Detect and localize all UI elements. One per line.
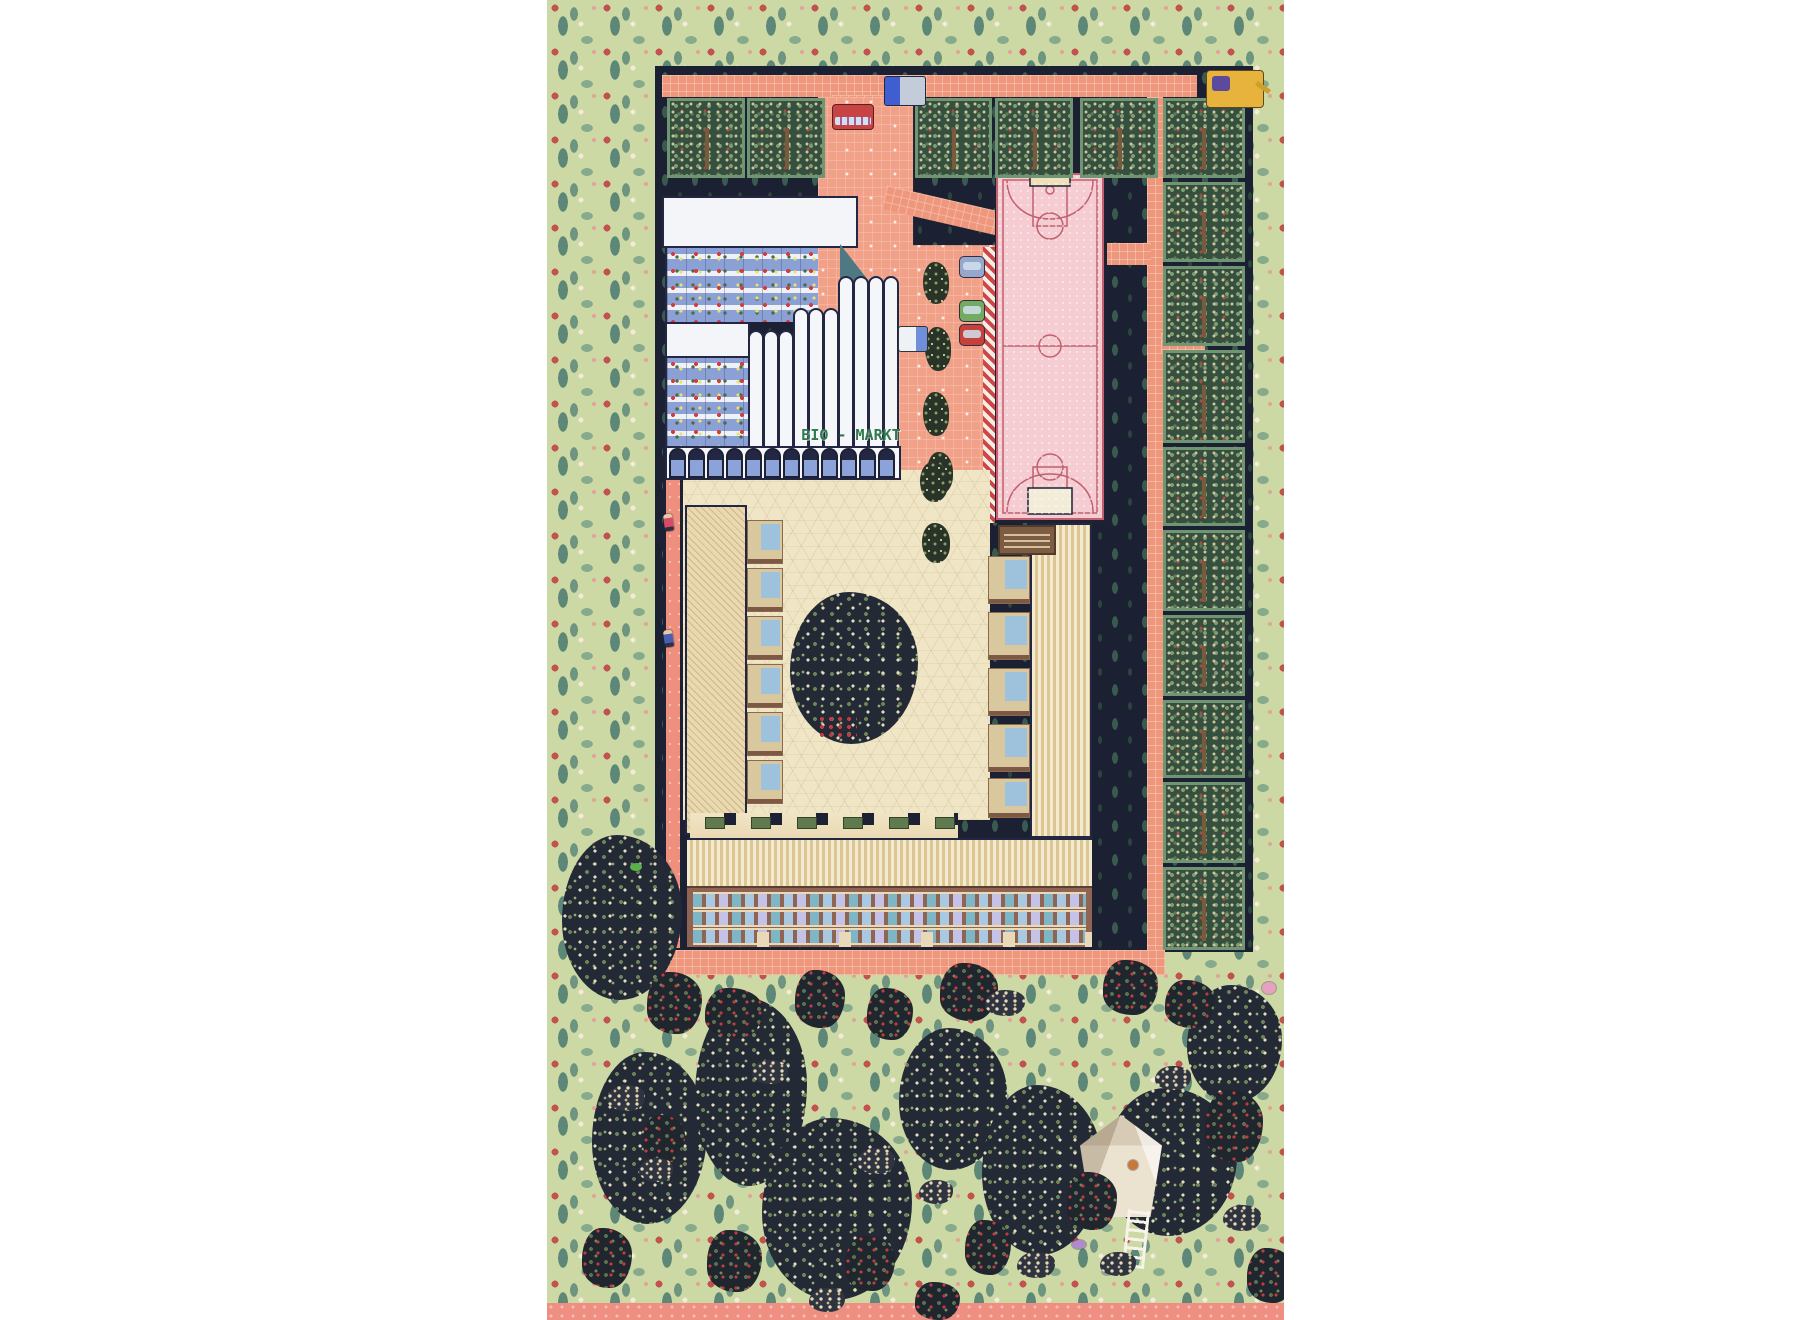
flower-cluster — [1223, 1205, 1261, 1231]
page: BIO - MARKT — [0, 0, 1800, 1320]
orchard-cell — [995, 98, 1073, 178]
car — [959, 324, 985, 346]
balcony — [747, 760, 783, 804]
orchard-cell — [1163, 266, 1245, 346]
flower-cluster — [1100, 1252, 1136, 1276]
balcony — [747, 520, 783, 564]
planter — [889, 817, 909, 829]
flower-cluster — [639, 1158, 673, 1182]
digger — [1206, 70, 1264, 108]
park-bush — [707, 1230, 762, 1292]
planter — [751, 817, 771, 829]
balcony — [747, 616, 783, 660]
park-bush — [845, 1236, 895, 1291]
facade-window-row — [693, 910, 1086, 927]
arch — [821, 448, 838, 478]
supermarket-lower-facade — [665, 358, 750, 448]
shrub — [925, 327, 951, 371]
pipe — [838, 276, 854, 448]
critter — [630, 863, 642, 871]
arch — [726, 448, 743, 478]
orchard-cell — [1163, 867, 1245, 950]
park-bush — [940, 963, 998, 1021]
west-wing-roof — [685, 505, 747, 835]
flower-cluster — [752, 1060, 788, 1084]
orchard-cell — [1163, 615, 1245, 696]
arch — [688, 448, 705, 478]
arch — [707, 448, 724, 478]
notice-board — [998, 525, 1056, 555]
arch — [669, 448, 686, 478]
supermarket-roof — [662, 196, 858, 248]
orchard-cell — [1163, 350, 1245, 443]
critter — [1072, 1240, 1086, 1249]
arch — [859, 448, 876, 478]
flower-cluster — [985, 990, 1025, 1016]
basketball-court-markings — [995, 170, 1107, 523]
pipe — [868, 276, 884, 448]
planter — [705, 817, 725, 829]
orchard-cell — [1080, 98, 1158, 178]
balcony — [747, 568, 783, 612]
flower-cluster — [1155, 1066, 1191, 1090]
pipe — [748, 330, 764, 448]
park-bush — [1247, 1248, 1284, 1303]
orchard-cell — [1163, 182, 1245, 262]
flower-cluster — [809, 1288, 845, 1312]
supermarket-lower-roof — [665, 322, 750, 358]
south-wing-roof — [687, 838, 1092, 886]
basketball-court — [995, 170, 1107, 523]
south-street-facade — [687, 886, 1092, 947]
park-bush — [867, 988, 913, 1040]
flower-cluster — [919, 1180, 953, 1204]
balcony-r — [988, 612, 1030, 660]
bio-markt-sign: BIO - MARKT — [795, 424, 907, 446]
facade-window-row — [693, 892, 1086, 909]
park-bush — [582, 1228, 632, 1288]
orchard-cell — [1163, 98, 1245, 178]
south-sidewalk — [660, 950, 1165, 975]
balcony — [747, 712, 783, 756]
car — [959, 300, 985, 322]
east-wing-roof — [1030, 523, 1092, 838]
facade-doors — [687, 932, 1092, 947]
pipe — [778, 330, 794, 448]
arch — [783, 448, 800, 478]
shrub — [922, 523, 950, 563]
park-bush — [915, 1282, 960, 1320]
balcony-r — [988, 724, 1030, 772]
pipe — [883, 276, 899, 448]
pipe — [853, 276, 869, 448]
planter — [797, 817, 817, 829]
arch — [802, 448, 819, 478]
bus — [832, 104, 874, 130]
balcony-r — [988, 668, 1030, 716]
balcony-r — [988, 778, 1030, 818]
courtyard-south-wall — [690, 813, 958, 838]
planter — [935, 817, 955, 829]
pipe — [763, 330, 779, 448]
orchard-cell — [915, 98, 992, 178]
orchard-cell — [1163, 700, 1245, 778]
east-footpath — [1147, 97, 1163, 952]
orchard-cell — [747, 98, 825, 178]
car — [959, 256, 985, 278]
balcony-r — [988, 556, 1030, 604]
shrub — [920, 462, 948, 502]
arch — [840, 448, 857, 478]
footpath-connector — [1103, 243, 1151, 265]
illustrated-site-map: BIO - MARKT — [547, 0, 1284, 1320]
shrub — [923, 262, 949, 304]
park-bush — [705, 988, 763, 1038]
flower-cluster — [607, 1085, 645, 1111]
truck — [884, 76, 926, 106]
flower-cluster — [857, 1148, 895, 1174]
delivery — [898, 326, 928, 352]
arch — [745, 448, 762, 478]
orchard-cell — [1163, 782, 1245, 863]
park-bush — [1103, 960, 1158, 1015]
shrub — [923, 392, 949, 436]
orchard-cell — [1163, 447, 1245, 526]
orchard-cell — [1163, 530, 1245, 611]
park-bush — [965, 1220, 1011, 1275]
critter — [1262, 982, 1276, 994]
orchard-cell — [667, 98, 745, 178]
park-bush — [643, 1115, 685, 1163]
planter — [843, 817, 863, 829]
arch — [878, 448, 895, 478]
balcony — [747, 664, 783, 708]
park-bush — [647, 972, 702, 1034]
top-street — [662, 75, 1197, 97]
critter — [1128, 1160, 1138, 1170]
park-bush — [795, 970, 845, 1028]
flower-cluster — [1017, 1252, 1055, 1278]
arch — [764, 448, 781, 478]
park-bush — [1067, 1172, 1117, 1230]
park-bush — [1205, 1090, 1263, 1162]
park-bush — [1165, 980, 1215, 1028]
